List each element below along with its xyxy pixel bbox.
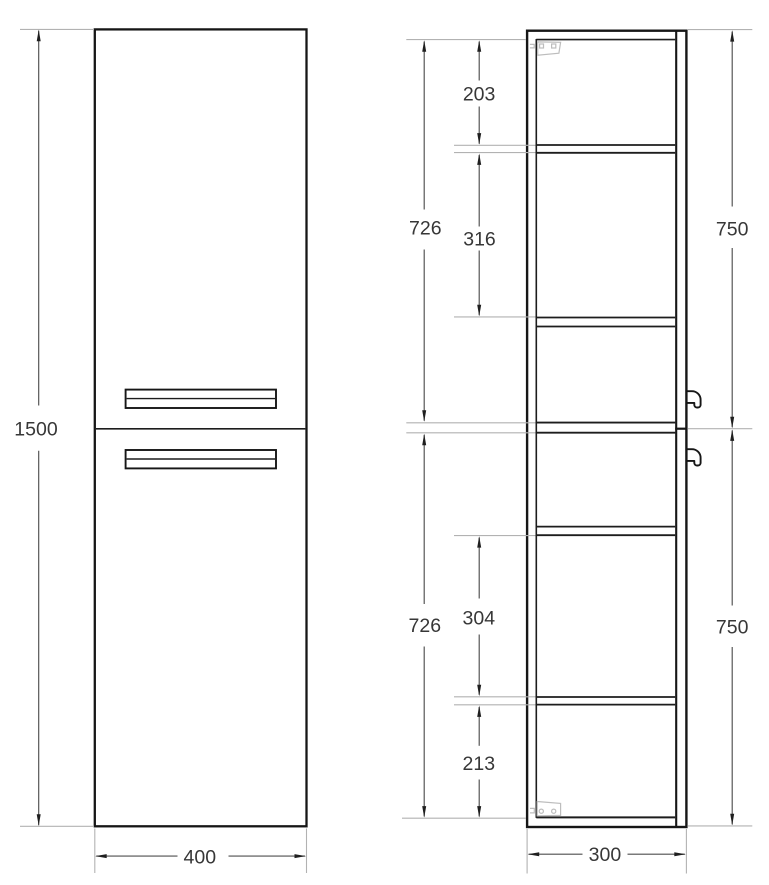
svg-text:726: 726 [409, 615, 442, 637]
svg-text:213: 213 [463, 753, 496, 775]
svg-text:400: 400 [184, 846, 217, 868]
svg-text:203: 203 [463, 84, 496, 106]
svg-text:304: 304 [463, 608, 496, 630]
svg-text:726: 726 [409, 218, 442, 240]
svg-text:750: 750 [716, 616, 749, 638]
svg-text:1500: 1500 [14, 418, 58, 440]
svg-text:300: 300 [589, 844, 622, 866]
svg-text:316: 316 [463, 229, 496, 251]
svg-text:750: 750 [716, 218, 749, 240]
